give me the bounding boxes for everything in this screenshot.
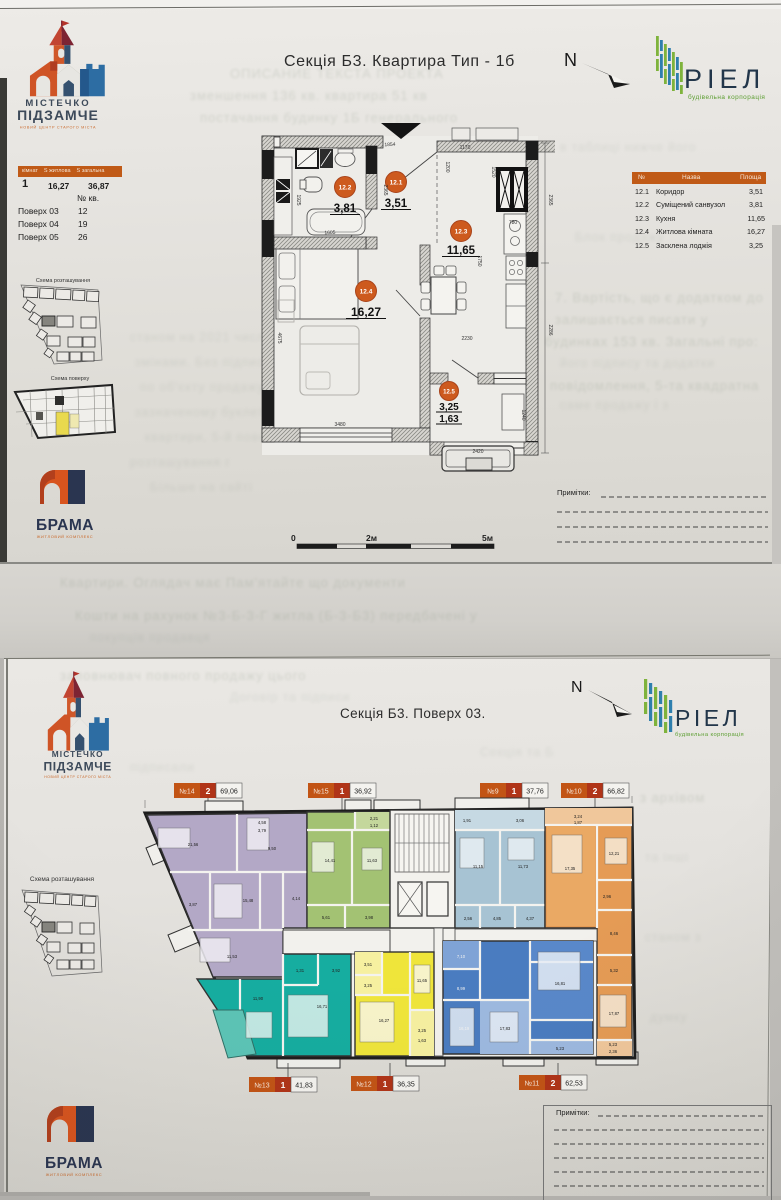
svg-text:1,63: 1,63 bbox=[439, 414, 459, 425]
svg-text:БРАМА: БРАМА bbox=[45, 1155, 103, 1172]
svg-text:2: 2 bbox=[551, 1078, 556, 1088]
svg-text:16,27: 16,27 bbox=[379, 1018, 390, 1023]
svg-text:НОВИЙ ЦЕНТР СТАРОГО МІСТА: НОВИЙ ЦЕНТР СТАРОГО МІСТА bbox=[44, 775, 111, 779]
svg-text:780: 780 bbox=[509, 220, 518, 226]
svg-text:Схема поверху: Схема поверху bbox=[51, 376, 90, 382]
svg-text:3,81: 3,81 bbox=[334, 203, 357, 215]
svg-text:2,56: 2,56 bbox=[464, 916, 473, 921]
svg-text:17,35: 17,35 bbox=[565, 866, 576, 871]
svg-text:ЖИТЛОВИЙ КОМПЛЕКС: ЖИТЛОВИЙ КОМПЛЕКС bbox=[46, 1172, 102, 1177]
svg-text:2,21: 2,21 bbox=[370, 816, 379, 821]
svg-text:1605: 1605 bbox=[324, 230, 336, 237]
svg-text:4,58: 4,58 bbox=[258, 820, 267, 825]
svg-text:3480: 3480 bbox=[334, 422, 345, 428]
svg-text:N: N bbox=[571, 679, 583, 696]
svg-text:РІЕЛ: РІЕЛ bbox=[675, 705, 741, 731]
svg-text:1750: 1750 bbox=[476, 255, 482, 266]
svg-text:5м: 5м bbox=[482, 533, 493, 543]
svg-text:НОВИЙ ЦЕНТР СТАРОГО МІСТА: НОВИЙ ЦЕНТР СТАРОГО МІСТА bbox=[20, 126, 96, 130]
svg-text:12.2: 12.2 bbox=[339, 185, 352, 192]
svg-text:1,12: 1,12 bbox=[370, 823, 379, 828]
svg-text:№11: №11 bbox=[525, 1081, 540, 1088]
svg-text:11,53: 11,53 bbox=[227, 954, 238, 959]
svg-text:1240: 1240 bbox=[520, 409, 526, 420]
svg-text:РІЕЛ: РІЕЛ bbox=[684, 64, 765, 94]
svg-text:3,92: 3,92 bbox=[332, 968, 341, 973]
svg-text:4675: 4675 bbox=[276, 332, 282, 343]
svg-text:3,79: 3,79 bbox=[258, 828, 267, 833]
svg-text:2420: 2420 bbox=[472, 449, 483, 455]
svg-text:1925: 1925 bbox=[295, 194, 301, 205]
svg-text:11,65: 11,65 bbox=[417, 978, 428, 983]
svg-text:1,63: 1,63 bbox=[418, 1038, 427, 1043]
svg-text:1170: 1170 bbox=[460, 145, 471, 151]
svg-text:1,31: 1,31 bbox=[296, 968, 305, 973]
svg-text:5,23: 5,23 bbox=[556, 1046, 565, 1051]
svg-text:17,87: 17,87 bbox=[609, 1011, 620, 1016]
svg-text:3,06: 3,06 bbox=[516, 818, 525, 823]
svg-text:11,65: 11,65 bbox=[447, 245, 476, 257]
svg-text:БРАМА: БРАМА bbox=[36, 517, 94, 534]
svg-text:будівельна корпорація: будівельна корпорація bbox=[688, 93, 765, 101]
svg-text:9,50: 9,50 bbox=[268, 846, 277, 851]
svg-text:3,51: 3,51 bbox=[385, 198, 408, 210]
svg-text:5,32: 5,32 bbox=[610, 968, 619, 973]
svg-text:Схема розташування: Схема розташування bbox=[36, 278, 90, 284]
svg-text:21,56: 21,56 bbox=[188, 842, 199, 847]
svg-text:2230: 2230 bbox=[461, 336, 472, 342]
svg-text:ПІДЗАМЧЕ: ПІДЗАМЧЕ bbox=[17, 107, 99, 123]
svg-text:16,19: 16,19 bbox=[459, 1026, 470, 1031]
svg-text:3,87: 3,87 bbox=[189, 902, 198, 907]
svg-text:8,99: 8,99 bbox=[457, 986, 466, 991]
svg-text:8,46: 8,46 bbox=[610, 931, 619, 936]
svg-text:МІСТЕЧКО: МІСТЕЧКО bbox=[52, 749, 104, 759]
svg-text:5,61: 5,61 bbox=[322, 915, 331, 920]
svg-text:2365: 2365 bbox=[382, 184, 388, 195]
svg-text:будівельна корпорація: будівельна корпорація bbox=[675, 732, 744, 738]
svg-text:16,81: 16,81 bbox=[555, 981, 566, 986]
svg-text:12.4: 12.4 bbox=[360, 289, 373, 296]
svg-text:2365: 2365 bbox=[547, 194, 553, 205]
svg-text:2,96: 2,96 bbox=[603, 894, 612, 899]
svg-text:1: 1 bbox=[383, 1079, 388, 1089]
svg-text:11,63: 11,63 bbox=[367, 858, 378, 863]
svg-text:2,36: 2,36 bbox=[609, 1049, 618, 1054]
svg-text:4,85: 4,85 bbox=[493, 916, 502, 921]
svg-text:36,35: 36,35 bbox=[397, 1082, 415, 1089]
svg-text:0: 0 bbox=[291, 533, 296, 543]
svg-text:12.1: 12.1 bbox=[390, 180, 403, 187]
svg-text:3,25: 3,25 bbox=[439, 402, 459, 413]
svg-text:41,83: 41,83 bbox=[295, 1083, 313, 1090]
svg-text:62,53: 62,53 bbox=[565, 1081, 583, 1088]
svg-text:№13: №13 bbox=[254, 1083, 269, 1090]
svg-text:N: N bbox=[564, 50, 577, 70]
svg-text:12,21: 12,21 bbox=[609, 851, 620, 856]
svg-text:11,15: 11,15 bbox=[473, 864, 484, 869]
svg-text:5,23: 5,23 bbox=[609, 1042, 618, 1047]
svg-text:ЖИТЛОВИЙ КОМПЛЕКС: ЖИТЛОВИЙ КОМПЛЕКС bbox=[37, 534, 93, 539]
svg-text:1854: 1854 bbox=[384, 142, 396, 149]
svg-text:16,27: 16,27 bbox=[351, 305, 381, 319]
svg-text:15,48: 15,48 bbox=[243, 898, 254, 903]
svg-text:4,37: 4,37 bbox=[526, 916, 535, 921]
svg-text:11,90: 11,90 bbox=[253, 996, 264, 1001]
svg-text:№12: №12 bbox=[356, 1082, 371, 1089]
svg-text:1200: 1200 bbox=[444, 161, 450, 172]
svg-text:3,51: 3,51 bbox=[364, 962, 373, 967]
svg-text:17,83: 17,83 bbox=[500, 1026, 511, 1031]
svg-text:4,14: 4,14 bbox=[292, 896, 301, 901]
svg-text:16,71: 16,71 bbox=[317, 1004, 328, 1009]
svg-text:Схема розташування: Схема розташування bbox=[30, 876, 95, 883]
svg-text:2286: 2286 bbox=[547, 324, 553, 335]
svg-text:2м: 2м bbox=[366, 533, 377, 543]
svg-text:7,10: 7,10 bbox=[457, 954, 466, 959]
svg-text:11,73: 11,73 bbox=[518, 864, 529, 869]
svg-text:1: 1 bbox=[281, 1080, 286, 1090]
svg-text:12.5: 12.5 bbox=[443, 390, 455, 396]
svg-text:1,91: 1,91 bbox=[463, 818, 472, 823]
svg-text:3,98: 3,98 bbox=[365, 915, 374, 920]
svg-text:1,87: 1,87 bbox=[574, 820, 583, 825]
svg-text:ПІДЗАМЧЕ: ПІДЗАМЧЕ bbox=[44, 760, 112, 774]
svg-text:3,25: 3,25 bbox=[364, 983, 373, 988]
svg-text:14,41: 14,41 bbox=[325, 858, 336, 863]
svg-text:3,25: 3,25 bbox=[418, 1028, 427, 1033]
svg-text:3,24: 3,24 bbox=[574, 814, 583, 819]
svg-text:12.3: 12.3 bbox=[455, 229, 468, 236]
svg-text:1520: 1520 bbox=[490, 166, 496, 177]
